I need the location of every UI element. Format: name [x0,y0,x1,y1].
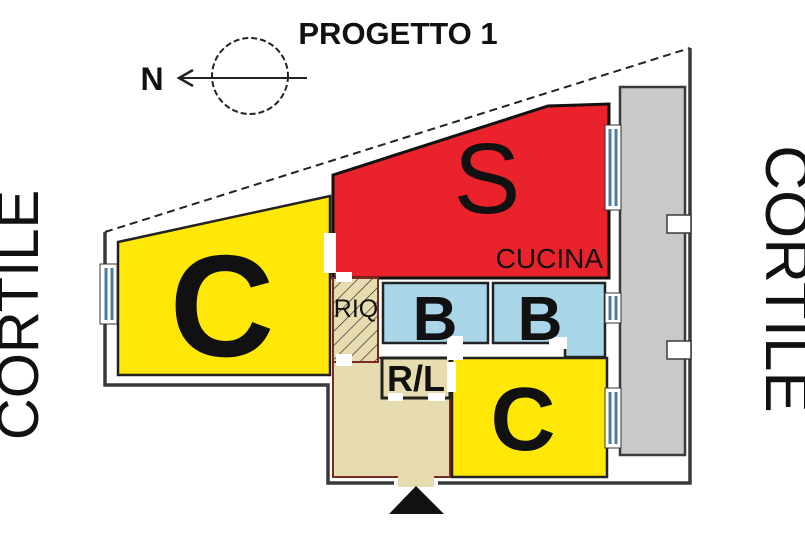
balcony-notch-bottom [667,341,691,359]
cortile-left-label: CORTILE [0,190,51,440]
riq-label: RIQ [334,295,378,323]
north-label: N [140,61,163,97]
room-c-right-label: C [491,370,556,470]
room-s-label: S [454,123,521,235]
window-left-frame [100,264,117,324]
door-gap-riq-top [336,272,352,282]
page-title: PROGETTO 1 [298,16,497,51]
north-compass: N [140,38,307,114]
room-b2-label: B [518,285,563,354]
balcony-notch-top [667,215,691,233]
cortile-right-label: CORTILE [752,145,805,413]
floor-plan-page: N PROGETTO 1 CORTILE CORTILE C S CUCINA … [0,0,805,541]
window-right-middle [605,293,621,323]
room-c-left-label: C [170,225,275,387]
door-gap-c-right [447,362,456,392]
entrance-threshold [398,476,434,487]
window-right-bottom [605,388,621,448]
door-gap-c-left [324,233,336,273]
room-rl-label: R/L [387,358,445,399]
cucina-label: CUCINA [496,243,604,274]
entrance-arrow-icon [389,486,444,514]
balcony-strip [620,87,685,455]
door-gap-riq-bottom [336,354,352,366]
room-b1-label: B [413,285,458,354]
compass-circle-icon [212,38,288,114]
window-right-top [605,125,621,210]
floor-plan-canvas: N PROGETTO 1 CORTILE CORTILE C S CUCINA … [0,0,805,541]
